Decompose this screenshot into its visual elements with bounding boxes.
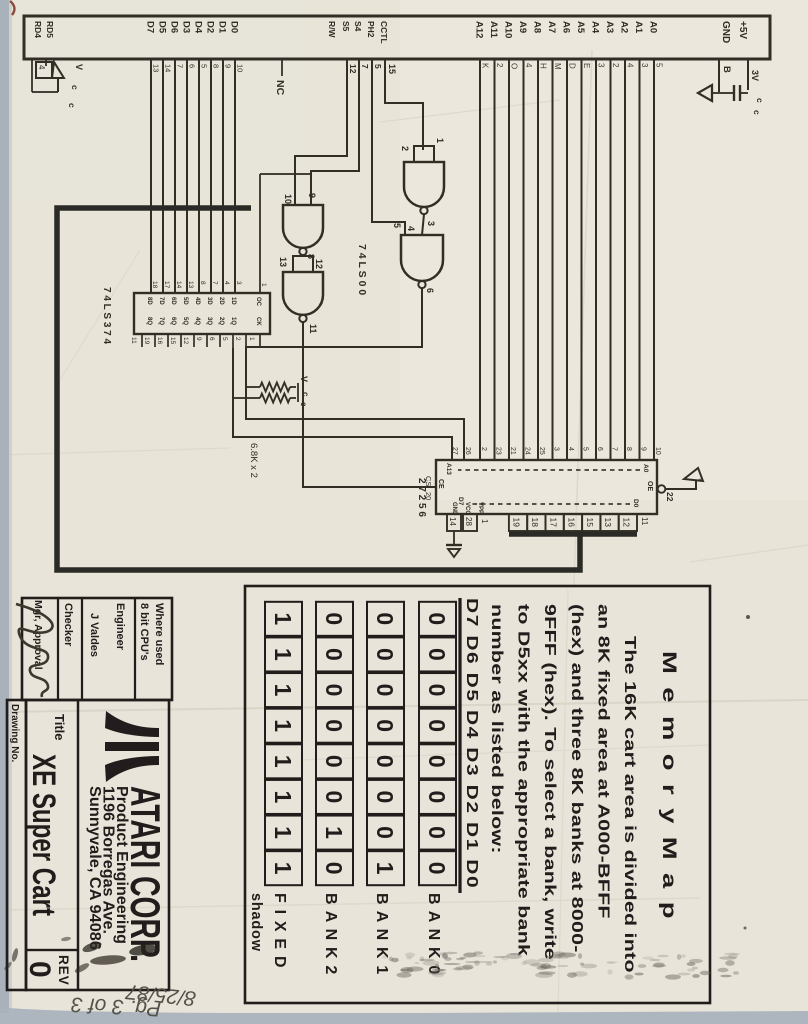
svg-text:7: 7 xyxy=(176,64,185,68)
svg-text:1D: 1D xyxy=(230,297,236,305)
svg-text:18: 18 xyxy=(151,281,158,289)
svg-text:11: 11 xyxy=(640,517,649,526)
svg-text:D4: D4 xyxy=(193,21,204,34)
svg-text:CE: CE xyxy=(437,479,444,489)
svg-text:c: c xyxy=(301,392,310,397)
svg-text:A8: A8 xyxy=(532,21,543,33)
svg-text:number as listed below:: number as listed below: xyxy=(489,604,506,854)
svg-text:Checker: Checker xyxy=(62,603,74,647)
svg-text:M: M xyxy=(553,63,562,70)
svg-text:CK: CK xyxy=(255,317,261,326)
svg-text:2D: 2D xyxy=(218,297,224,305)
svg-text:25: 25 xyxy=(538,447,545,455)
svg-text:CCTL: CCTL xyxy=(379,21,389,44)
svg-text:7: 7 xyxy=(211,281,218,285)
svg-text:D3: D3 xyxy=(181,21,192,33)
svg-text:17: 17 xyxy=(548,518,558,528)
svg-text:0: 0 xyxy=(424,612,450,625)
svg-text:0: 0 xyxy=(372,719,398,732)
svg-text:RD5: RD5 xyxy=(45,21,55,38)
svg-text:5: 5 xyxy=(655,63,664,68)
svg-text:1: 1 xyxy=(260,283,267,287)
svg-text:1: 1 xyxy=(270,791,296,804)
svg-text:D2: D2 xyxy=(205,21,216,33)
svg-text:0: 0 xyxy=(424,648,450,661)
svg-text:F I X E D: F I X E D xyxy=(271,893,288,969)
svg-text:5: 5 xyxy=(373,64,383,69)
svg-text:8: 8 xyxy=(212,64,221,68)
svg-text:OC: OC xyxy=(255,297,261,307)
svg-text:0: 0 xyxy=(372,826,398,839)
svg-text:2: 2 xyxy=(495,63,504,68)
svg-text:18: 18 xyxy=(530,518,540,528)
svg-text:6Q: 6Q xyxy=(170,317,176,325)
svg-text:1: 1 xyxy=(270,826,296,839)
svg-text:14: 14 xyxy=(448,517,457,526)
svg-text:A5: A5 xyxy=(575,21,586,34)
svg-text:2Q: 2Q xyxy=(218,317,224,325)
svg-text:D: D xyxy=(568,63,577,69)
svg-text:an 8K fixed area at A000-BFFF: an 8K fixed area at A000-BFFF xyxy=(595,604,612,919)
svg-text:1: 1 xyxy=(270,755,296,768)
svg-text:0: 0 xyxy=(424,755,450,768)
svg-text:c: c xyxy=(67,103,77,108)
svg-text:12: 12 xyxy=(314,259,324,269)
svg-text:3D: 3D xyxy=(206,297,212,305)
svg-text:6: 6 xyxy=(208,337,215,341)
svg-text:S5: S5 xyxy=(341,21,351,32)
svg-text:3: 3 xyxy=(426,221,436,226)
svg-text:4: 4 xyxy=(406,226,416,231)
svg-text:O: O xyxy=(510,63,519,69)
svg-text:B A N K 2: B A N K 2 xyxy=(322,893,339,976)
svg-text:A7: A7 xyxy=(546,21,557,33)
svg-text:VPP: VPP xyxy=(477,502,483,514)
svg-text:28: 28 xyxy=(464,517,473,526)
svg-text:2: 2 xyxy=(234,337,241,341)
svg-text:0: 0 xyxy=(321,612,347,625)
svg-text:S4: S4 xyxy=(353,21,363,32)
svg-text:CS: CS xyxy=(424,476,433,486)
svg-text:M e m o r y M a p: M e m o r y M a p xyxy=(659,651,681,921)
svg-text:REV: REV xyxy=(56,955,71,986)
svg-text:1: 1 xyxy=(270,684,296,697)
svg-text:19: 19 xyxy=(512,518,522,528)
svg-text:4: 4 xyxy=(626,63,635,68)
svg-text:3: 3 xyxy=(597,63,606,68)
svg-text:13: 13 xyxy=(187,281,194,289)
svg-text:0: 0 xyxy=(372,684,398,697)
svg-text:23: 23 xyxy=(495,447,502,455)
svg-text:K: K xyxy=(481,63,490,69)
svg-text:9: 9 xyxy=(224,64,233,68)
svg-text:8: 8 xyxy=(199,281,206,285)
svg-text:NC: NC xyxy=(274,80,286,96)
svg-text:24: 24 xyxy=(524,447,531,455)
svg-text:6.8K x 2: 6.8K x 2 xyxy=(248,443,259,478)
svg-text:B A N K 1: B A N K 1 xyxy=(373,893,390,976)
svg-text:7 4 L S 0 0: 7 4 L S 0 0 xyxy=(356,244,368,295)
svg-text:15: 15 xyxy=(585,518,595,528)
svg-text:3: 3 xyxy=(235,281,242,285)
svg-text:5: 5 xyxy=(221,337,228,341)
svg-text:A12: A12 xyxy=(474,21,485,38)
svg-text:7: 7 xyxy=(611,447,618,451)
svg-text:12: 12 xyxy=(622,518,632,528)
svg-text:Where used: Where used xyxy=(153,603,165,665)
svg-text:1: 1 xyxy=(372,862,398,875)
svg-text:0: 0 xyxy=(321,648,347,661)
svg-text:1: 1 xyxy=(321,826,347,839)
svg-text:0: 0 xyxy=(372,755,398,768)
svg-text:12: 12 xyxy=(182,337,189,345)
svg-text:The 16K cart area is divided i: The 16K cart area is divided into xyxy=(622,636,639,973)
svg-text:8: 8 xyxy=(625,447,632,451)
svg-text:5: 5 xyxy=(582,447,589,451)
svg-text:5: 5 xyxy=(200,64,209,68)
svg-text:12: 12 xyxy=(348,64,358,74)
svg-text:6: 6 xyxy=(425,288,435,293)
svg-text:c: c xyxy=(752,110,762,115)
svg-text:D0: D0 xyxy=(229,21,240,33)
svg-text:D5: D5 xyxy=(157,21,168,34)
svg-text:13: 13 xyxy=(152,64,161,72)
svg-text:0: 0 xyxy=(372,612,398,625)
svg-text:19: 19 xyxy=(143,337,150,345)
svg-text:0: 0 xyxy=(321,684,347,697)
svg-text:0: 0 xyxy=(321,791,347,804)
svg-text:A2: A2 xyxy=(619,21,630,33)
svg-text:D7 D6 D5 D4 D3 D2 D1 D0: D7 D6 D5 D4 D3 D2 D1 D0 xyxy=(463,598,481,889)
svg-text:RD4: RD4 xyxy=(33,21,43,38)
svg-text:11: 11 xyxy=(130,337,137,344)
svg-text:0: 0 xyxy=(424,684,450,697)
svg-text:7 4 L S 3 7 4: 7 4 L S 3 7 4 xyxy=(101,287,112,345)
svg-text:1: 1 xyxy=(270,648,296,661)
svg-text:14: 14 xyxy=(164,64,173,72)
svg-text:5Q: 5Q xyxy=(182,317,188,325)
svg-text:0: 0 xyxy=(424,791,450,804)
svg-text:PH2: PH2 xyxy=(366,21,376,38)
svg-text:XE Super Cart: XE Super Cart xyxy=(26,754,62,916)
svg-text:A4: A4 xyxy=(590,21,601,34)
svg-text:8D: 8D xyxy=(146,297,152,305)
svg-text:1: 1 xyxy=(248,337,255,341)
svg-text:11: 11 xyxy=(308,324,318,334)
svg-text:Engineer: Engineer xyxy=(114,603,126,651)
svg-text:9FFF (hex). To select a bank,: 9FFF (hex). To select a bank, write xyxy=(542,604,559,960)
svg-text:D7: D7 xyxy=(145,21,156,33)
svg-text:D7: D7 xyxy=(457,497,464,506)
svg-text:4D: 4D xyxy=(194,297,200,305)
svg-text:1: 1 xyxy=(270,719,296,732)
svg-text:1: 1 xyxy=(270,612,296,625)
svg-text:to D5xx with the appropriate b: to D5xx with the appropriate bank xyxy=(515,604,532,957)
svg-text:+5V: +5V xyxy=(737,21,748,39)
svg-text:D1: D1 xyxy=(217,21,228,34)
svg-text:7Q: 7Q xyxy=(158,317,164,325)
svg-text:6D: 6D xyxy=(170,297,176,305)
svg-text:0: 0 xyxy=(424,826,450,839)
svg-text:9: 9 xyxy=(195,337,202,341)
svg-text:5: 5 xyxy=(392,223,402,228)
svg-text:13: 13 xyxy=(278,257,288,267)
svg-text:B: B xyxy=(721,66,732,73)
svg-text:c: c xyxy=(755,98,765,103)
svg-text:1Q: 1Q xyxy=(230,317,236,325)
svg-text:4Q: 4Q xyxy=(194,317,200,325)
svg-text:17: 17 xyxy=(163,281,170,289)
svg-text:13: 13 xyxy=(603,518,613,528)
svg-text:H: H xyxy=(539,63,548,69)
svg-text:3: 3 xyxy=(640,63,649,68)
svg-text:8Q: 8Q xyxy=(146,317,152,325)
svg-text:2: 2 xyxy=(480,447,487,451)
svg-text:J Valdes: J Valdes xyxy=(88,613,100,657)
svg-text:7: 7 xyxy=(360,64,370,69)
svg-text:(hex) and three 8K banks at 80: (hex) and three 8K banks at 8000- xyxy=(568,604,585,953)
svg-text:6: 6 xyxy=(188,64,197,68)
svg-text:5D: 5D xyxy=(182,297,188,305)
svg-text:1: 1 xyxy=(270,862,296,875)
svg-text:10: 10 xyxy=(236,64,245,72)
svg-text:3V: 3V xyxy=(750,70,760,81)
svg-text:15: 15 xyxy=(387,64,397,74)
svg-text:c: c xyxy=(299,402,308,407)
svg-text:A11: A11 xyxy=(488,21,499,39)
svg-text:0: 0 xyxy=(23,961,56,978)
svg-text:26: 26 xyxy=(464,447,471,455)
svg-text:9: 9 xyxy=(640,447,647,451)
svg-text:R/W: R/W xyxy=(327,21,337,39)
svg-text:A10: A10 xyxy=(503,21,514,38)
svg-text:0: 0 xyxy=(424,719,450,732)
svg-text:3Q: 3Q xyxy=(206,317,212,325)
svg-text:8 bit CPU's: 8 bit CPU's xyxy=(138,603,150,661)
svg-text:A9: A9 xyxy=(517,21,528,33)
svg-text:0: 0 xyxy=(321,862,347,875)
svg-text:10: 10 xyxy=(654,447,661,455)
svg-text:1: 1 xyxy=(480,519,489,524)
svg-text:21: 21 xyxy=(509,447,516,455)
svg-text:A3: A3 xyxy=(604,21,615,33)
svg-text:0: 0 xyxy=(372,648,398,661)
svg-text:2: 2 xyxy=(611,63,620,68)
svg-text:c: c xyxy=(70,85,80,90)
svg-text:E: E xyxy=(582,63,591,68)
svg-text:Sunnyvale, CA 94086: Sunnyvale, CA 94086 xyxy=(86,786,103,950)
svg-text:4: 4 xyxy=(567,447,574,451)
svg-text:Drawing No.: Drawing No. xyxy=(9,704,20,763)
svg-text:A13: A13 xyxy=(445,463,452,475)
svg-text:4: 4 xyxy=(223,281,230,285)
svg-text:D6: D6 xyxy=(169,21,180,33)
svg-text:V: V xyxy=(74,64,84,70)
svg-text:V: V xyxy=(299,376,309,382)
svg-text:4: 4 xyxy=(524,63,533,68)
svg-text:16: 16 xyxy=(156,337,163,345)
svg-text:15: 15 xyxy=(169,337,176,345)
svg-text:0: 0 xyxy=(321,755,347,768)
svg-text:2: 2 xyxy=(400,146,410,151)
svg-text:OE: OE xyxy=(646,481,653,491)
svg-text:0: 0 xyxy=(424,862,450,875)
svg-text:4: 4 xyxy=(37,65,46,70)
svg-text:9: 9 xyxy=(307,193,317,198)
svg-text:A0: A0 xyxy=(648,21,659,33)
svg-text:10: 10 xyxy=(283,194,293,204)
svg-text:6: 6 xyxy=(596,447,603,451)
svg-text:GND: GND xyxy=(720,21,731,43)
svg-text:22: 22 xyxy=(665,492,675,502)
svg-text:0: 0 xyxy=(321,719,347,732)
svg-text:3: 3 xyxy=(553,447,560,451)
svg-text:D0: D0 xyxy=(632,499,639,508)
svg-text:16: 16 xyxy=(567,518,577,528)
svg-text:A0: A0 xyxy=(642,464,649,473)
svg-text:Title: Title xyxy=(52,714,67,741)
svg-text:shadow: shadow xyxy=(248,893,264,952)
svg-text:A6: A6 xyxy=(561,21,572,33)
svg-text:27: 27 xyxy=(451,447,458,455)
svg-text:1: 1 xyxy=(435,138,445,143)
svg-text:7D: 7D xyxy=(158,297,164,305)
svg-text:14: 14 xyxy=(175,281,182,289)
svg-text:20: 20 xyxy=(424,492,433,500)
svg-text:A1: A1 xyxy=(633,21,644,34)
svg-text:0: 0 xyxy=(372,791,398,804)
